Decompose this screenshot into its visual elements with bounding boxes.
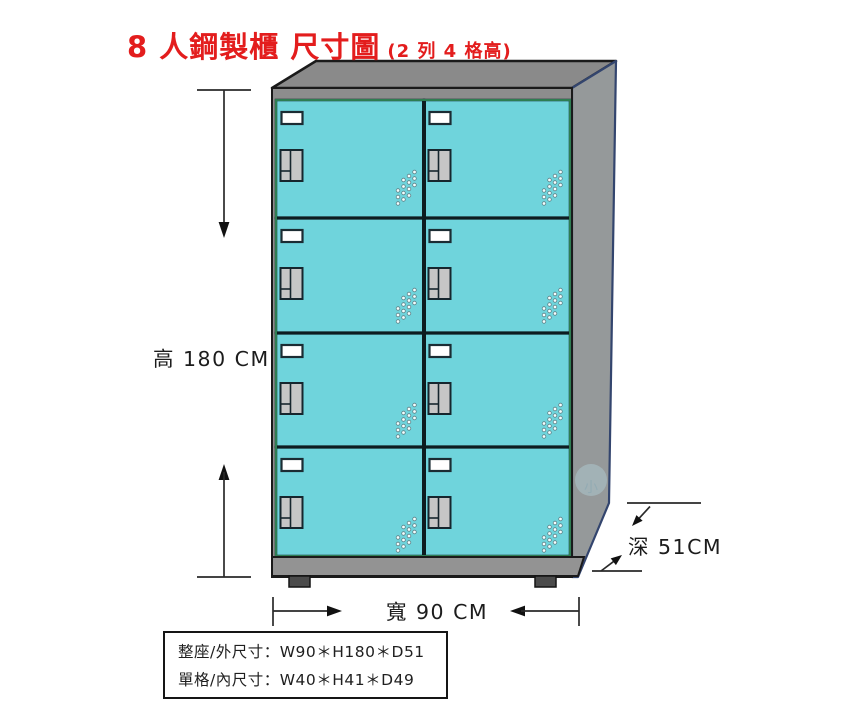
vent-hole: [548, 545, 552, 549]
vent-hole: [548, 309, 552, 313]
locker-door: [424, 100, 570, 218]
vent-hole: [402, 191, 406, 195]
vent-hole: [413, 288, 417, 292]
vent-hole: [413, 517, 417, 521]
vent-hole: [402, 545, 406, 549]
vent-hole: [553, 305, 557, 309]
page-title: 8 人鋼製櫃 尺寸圖 (2 列 4 格高): [127, 24, 512, 66]
vent-hole: [542, 189, 546, 193]
vent-hole: [559, 170, 563, 174]
vent-hole: [548, 191, 552, 195]
vent-hole: [559, 403, 563, 407]
vent-hole: [402, 309, 406, 313]
vent-hole: [413, 177, 417, 181]
vent-hole: [402, 424, 406, 428]
vent-hole: [559, 416, 563, 420]
vent-hole: [407, 521, 411, 525]
vent-hole: [559, 301, 563, 305]
vent-hole: [548, 418, 552, 422]
vent-hole: [542, 202, 546, 206]
handle-body: [429, 150, 451, 181]
name-card-slot: [282, 230, 303, 242]
vent-hole: [413, 170, 417, 174]
vent-hole: [559, 183, 563, 187]
watermark: 小: [575, 464, 607, 496]
vent-hole: [559, 517, 563, 521]
page-title-main: 8 人鋼製櫃 尺寸圖: [127, 24, 380, 66]
vent-hole: [559, 177, 563, 181]
vent-hole: [542, 428, 546, 432]
handle-body: [429, 497, 451, 528]
name-card-slot: [430, 230, 451, 242]
cabinet-foot: [289, 576, 310, 587]
spec-box: 整座/外尺寸：W90＊H180＊D51 單格/內尺寸：W40＊H41＊D49: [163, 631, 448, 699]
vent-hole: [553, 174, 557, 178]
vent-hole: [559, 524, 563, 528]
vent-hole: [407, 187, 411, 191]
vent-hole: [553, 181, 557, 185]
depth-arrow-line-bottom: [601, 562, 614, 571]
vent-hole: [553, 292, 557, 296]
vent-hole: [542, 542, 546, 546]
vent-hole: [548, 525, 552, 529]
vent-hole: [413, 416, 417, 420]
vent-hole: [396, 542, 400, 546]
door-handle: [429, 268, 451, 299]
vent-hole: [542, 195, 546, 199]
vent-hole: [396, 549, 400, 553]
vent-hole: [407, 528, 411, 532]
handle-body: [429, 268, 451, 299]
depth-arrowhead-up-right: [611, 555, 622, 565]
vent-hole: [407, 299, 411, 303]
vent-hole: [402, 418, 406, 422]
vent-hole: [553, 187, 557, 191]
vent-hole: [402, 431, 406, 435]
vent-hole: [553, 427, 557, 431]
vent-hole: [413, 524, 417, 528]
spec-inner-size: 單格/內尺寸：W40＊H41＊D49: [178, 668, 446, 690]
locker-door: [276, 100, 424, 218]
vent-hole: [396, 435, 400, 439]
vent-hole: [402, 198, 406, 202]
cabinet-side-panel: [572, 61, 616, 577]
vent-hole: [402, 178, 406, 182]
vent-hole: [542, 320, 546, 324]
vent-hole: [396, 202, 400, 206]
handle-body: [281, 150, 303, 181]
vent-hole: [553, 534, 557, 538]
door-handle: [281, 268, 303, 299]
vent-hole: [548, 296, 552, 300]
vent-hole: [396, 422, 400, 426]
handle-body: [429, 383, 451, 414]
vent-hole: [548, 178, 552, 182]
vent-hole: [542, 313, 546, 317]
locker-door: [276, 447, 424, 556]
vent-hole: [553, 414, 557, 418]
vent-hole: [553, 541, 557, 545]
name-card-slot: [282, 459, 303, 471]
vent-hole: [559, 410, 563, 414]
vent-hole: [553, 312, 557, 316]
locker-door: [424, 218, 570, 333]
vent-hole: [553, 194, 557, 198]
vent-hole: [396, 313, 400, 317]
cabinet: 小: [272, 61, 616, 587]
door-handle: [429, 497, 451, 528]
handle-body: [281, 383, 303, 414]
vent-hole: [407, 181, 411, 185]
vent-hole: [542, 422, 546, 426]
watermark-text: 小: [584, 480, 598, 496]
vent-hole: [413, 301, 417, 305]
vent-hole: [407, 407, 411, 411]
vent-hole: [548, 538, 552, 542]
name-card-slot: [430, 345, 451, 357]
depth-dimension-label: 深 51CM: [628, 530, 722, 560]
depth-arrow-line-top: [639, 507, 650, 519]
vent-hole: [548, 316, 552, 320]
vent-hole: [559, 295, 563, 299]
vent-hole: [402, 532, 406, 536]
vent-hole: [553, 407, 557, 411]
vent-hole: [396, 195, 400, 199]
vent-hole: [402, 411, 406, 415]
vent-hole: [559, 530, 563, 534]
name-card-slot: [282, 112, 303, 124]
vent-hole: [542, 536, 546, 540]
spec-outer-size: 整座/外尺寸：W90＊H180＊D51: [178, 640, 446, 662]
vent-hole: [407, 292, 411, 296]
vent-hole: [396, 536, 400, 540]
name-card-slot: [430, 112, 451, 124]
vent-hole: [407, 427, 411, 431]
vent-hole: [407, 534, 411, 538]
vent-hole: [413, 403, 417, 407]
locker-door: [424, 447, 570, 556]
vent-hole: [553, 521, 557, 525]
door-handle: [281, 497, 303, 528]
cabinet-foot: [535, 576, 556, 587]
door-handle: [281, 150, 303, 181]
vent-hole: [548, 431, 552, 435]
vent-hole: [542, 435, 546, 439]
cabinet-base: [272, 557, 584, 576]
vent-hole: [542, 549, 546, 553]
vent-hole: [402, 538, 406, 542]
vent-hole: [413, 295, 417, 299]
vent-hole: [407, 420, 411, 424]
door-handle: [281, 383, 303, 414]
width-dimension-label: 寬 90 CM: [386, 595, 488, 625]
vent-hole: [396, 189, 400, 193]
locker-door: [276, 333, 424, 447]
vent-hole: [396, 320, 400, 324]
vent-hole: [407, 541, 411, 545]
vent-hole: [548, 198, 552, 202]
vent-hole: [413, 183, 417, 187]
door-handle: [429, 150, 451, 181]
vent-hole: [548, 411, 552, 415]
vent-hole: [407, 174, 411, 178]
vent-hole: [407, 414, 411, 418]
handle-body: [281, 268, 303, 299]
name-card-slot: [430, 459, 451, 471]
door-handle: [429, 383, 451, 414]
vent-hole: [402, 303, 406, 307]
vent-hole: [542, 307, 546, 311]
vent-hole: [396, 428, 400, 432]
width-arrowhead-right: [327, 606, 342, 617]
vent-hole: [402, 296, 406, 300]
vent-hole: [553, 299, 557, 303]
vent-hole: [407, 194, 411, 198]
vent-hole: [402, 185, 406, 189]
vent-hole: [413, 410, 417, 414]
height-dimension-label: 高 180 CM: [153, 342, 270, 372]
vent-hole: [396, 307, 400, 311]
page-title-sub: (2 列 4 格高): [387, 37, 511, 63]
height-arrowhead-down: [219, 222, 230, 238]
vent-hole: [553, 420, 557, 424]
page: { "title": { "main": "8 人鋼製櫃 尺寸圖", "sub"…: [0, 0, 843, 720]
vent-hole: [548, 303, 552, 307]
locker-door: [424, 333, 570, 447]
vent-hole: [559, 288, 563, 292]
vent-hole: [407, 305, 411, 309]
handle-body: [281, 497, 303, 528]
locker-door: [276, 218, 424, 333]
vent-hole: [407, 312, 411, 316]
name-card-slot: [282, 345, 303, 357]
height-dimension: [197, 90, 251, 577]
vent-hole: [553, 528, 557, 532]
vent-hole: [548, 185, 552, 189]
vent-hole: [413, 530, 417, 534]
vent-hole: [548, 532, 552, 536]
vent-hole: [402, 316, 406, 320]
vent-hole: [402, 525, 406, 529]
vent-hole: [548, 424, 552, 428]
